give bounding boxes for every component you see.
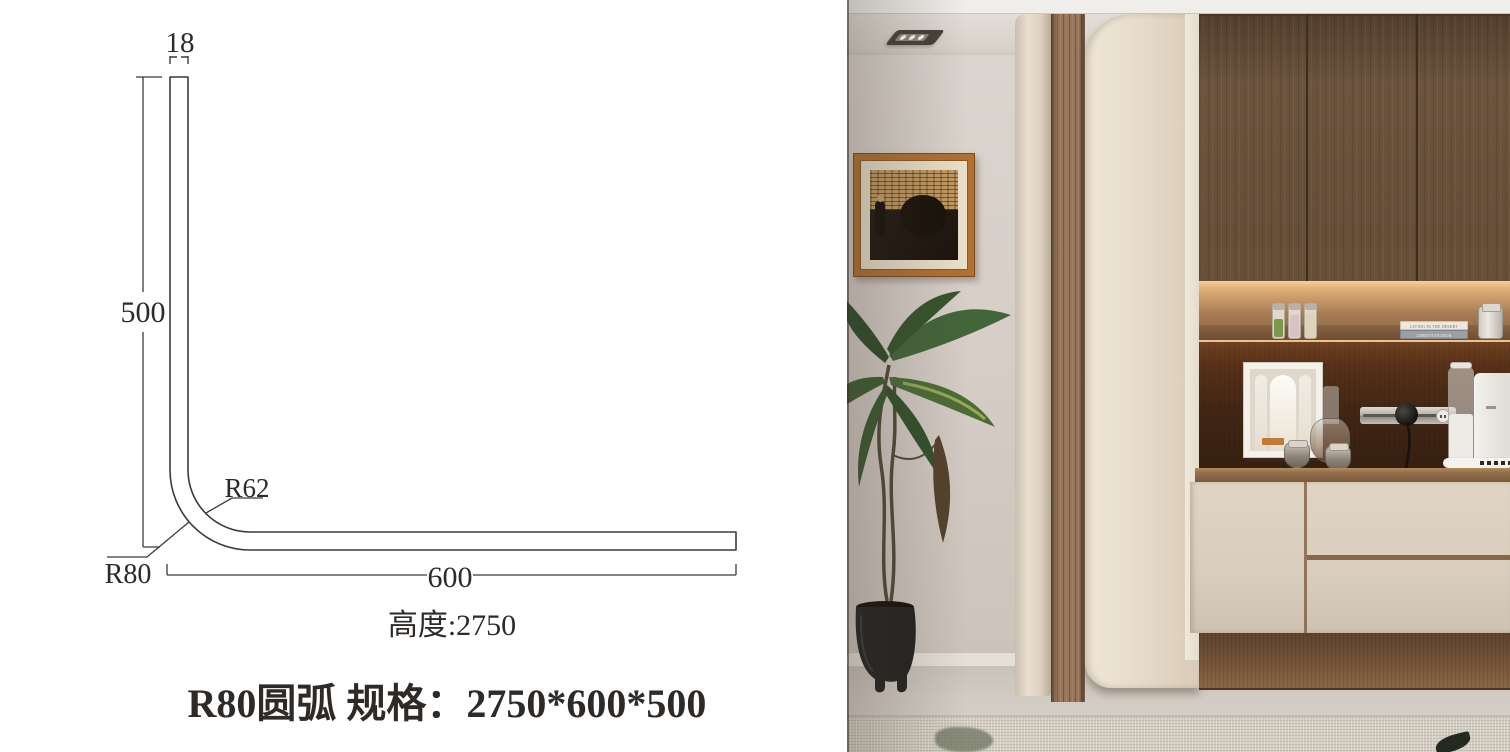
jar-lid [1273, 304, 1284, 310]
dim-left-label: 500 [121, 296, 166, 329]
tall-rounded-door-panel [1085, 14, 1199, 688]
countertop [1195, 468, 1510, 483]
jar-lid [1305, 304, 1316, 310]
book-spine: LIVING IN THE DESERT [1400, 321, 1468, 330]
profile-drawing-panel: 18 500 600 R62 R80 高度:2750 R80圆弧 规格：2750… [0, 0, 847, 752]
radius-outer-label: R80 [105, 559, 152, 590]
photo-vignette [847, 0, 967, 752]
jar-contents [1290, 315, 1299, 337]
coffee-machine-logo [1486, 406, 1496, 409]
counter-artwork [1250, 369, 1316, 451]
coffee-machine-cap [1450, 362, 1472, 369]
profile-drawing-svg: 18 500 600 R62 R80 高度:2750 R80圆弧 规格：2750… [0, 0, 847, 752]
upper-cabinet-seam [1416, 14, 1418, 281]
leader-r80 [107, 522, 189, 557]
jar-contents [1274, 319, 1283, 337]
coffee-machine-body [1474, 373, 1510, 463]
glass-jar-pink [1288, 303, 1301, 339]
toe-kick-recess [1199, 633, 1510, 690]
jar-contents [1306, 313, 1315, 337]
artwork-bench [1262, 438, 1284, 445]
book-stack: LIVING IN THE DESERT CHRISTIAN DIOR [1400, 321, 1468, 339]
photo-left-edge [847, 0, 849, 752]
coffee-machine-sleeve [1449, 414, 1473, 461]
interior-photo: LIVING IN THE DESERT CHRISTIAN DIOR [847, 0, 1510, 752]
book-spine: CHRISTIAN DIOR [1400, 330, 1468, 339]
glass-canister [1478, 306, 1503, 339]
coffee-machine [1448, 364, 1510, 468]
dim-bottom-label: 600 [428, 561, 473, 594]
canister-lid [1482, 303, 1501, 312]
jar-lid [1289, 304, 1300, 310]
vessel-lid [1288, 440, 1308, 448]
drawing-title: R80圆弧 规格：2750*600*500 [188, 681, 707, 726]
drawer-seam [1307, 555, 1510, 560]
wood-trim-strip [1051, 14, 1085, 702]
dim-top-label: 18 [166, 27, 195, 59]
coffee-machine-buttons [1480, 461, 1510, 465]
upper-cabinet-seam [1306, 14, 1308, 281]
small-glass-vessel [1284, 442, 1310, 468]
radius-inner-label: R62 [224, 473, 269, 503]
vessel-lid [1329, 443, 1349, 451]
upper-cabinets [1199, 14, 1510, 283]
product-spec-sheet: { "diagram": { "dim_top": "18", "dim_lef… [0, 0, 1510, 752]
glass-jar-cream [1304, 303, 1317, 339]
glass-jar-green [1272, 303, 1285, 339]
height-note: 高度:2750 [388, 609, 516, 642]
curved-column-panel [1015, 14, 1051, 696]
